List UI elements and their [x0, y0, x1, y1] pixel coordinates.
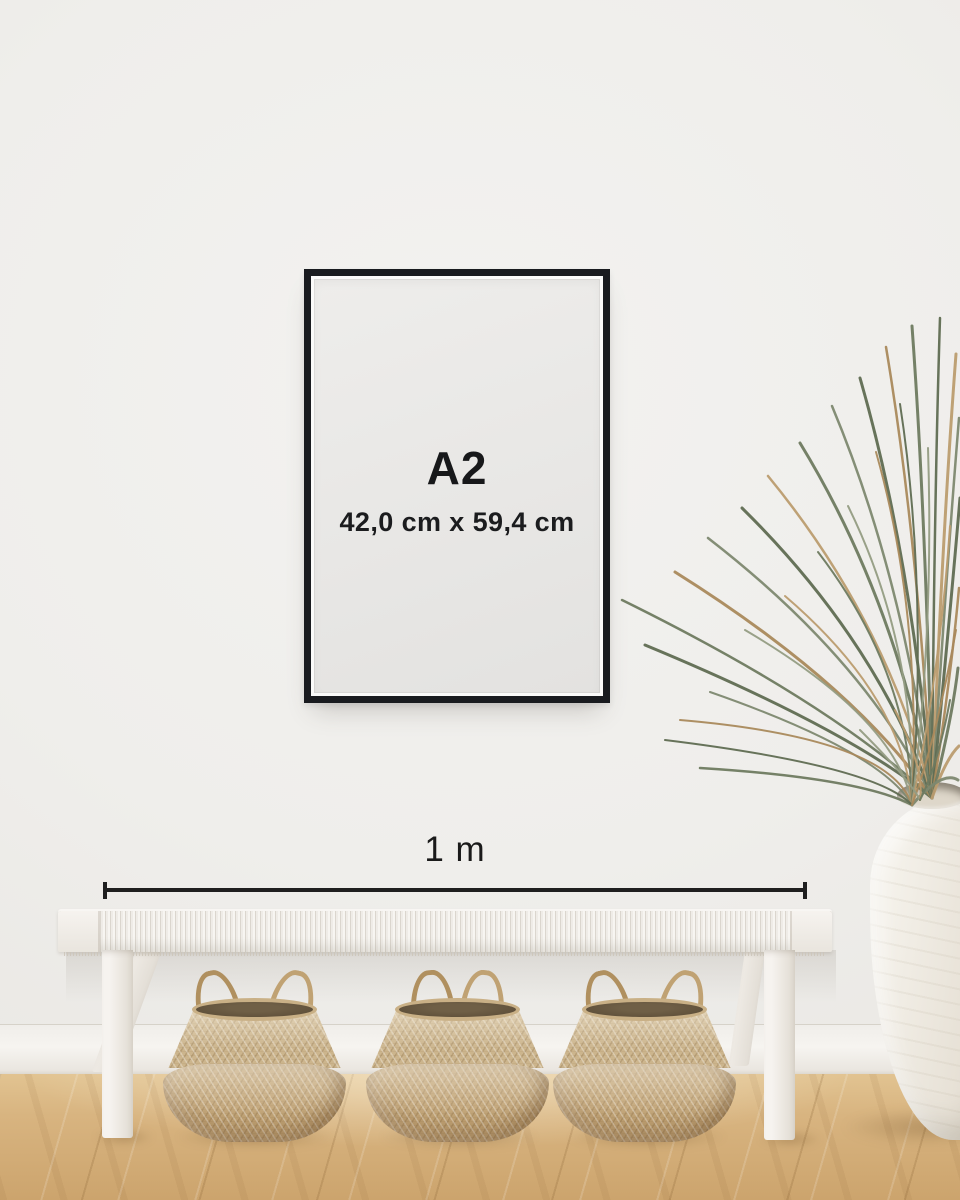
- palm-plant-illustration: [560, 300, 960, 820]
- basket-body-lower: [366, 1064, 549, 1142]
- basket-body-lower: [553, 1064, 736, 1142]
- palm-frond: [700, 768, 912, 805]
- basket-rim: [192, 998, 316, 1021]
- basket-body-lower: [163, 1064, 346, 1142]
- palm-frond: [708, 538, 932, 798]
- ruler-end-tick-left: [103, 882, 107, 899]
- bench-frame-end-right: [790, 911, 832, 952]
- palm-frond: [622, 600, 932, 798]
- measurement-ruler: 1 m: [103, 832, 807, 902]
- basket-center: [366, 958, 549, 1144]
- poster-dimensions-label: 42,0 cm x 59,4 cm: [340, 509, 575, 536]
- basket-rim: [395, 998, 519, 1021]
- basket-rim: [582, 998, 706, 1021]
- basket-left: [163, 958, 346, 1144]
- ruler-end-tick-right: [803, 882, 807, 899]
- bench-frame-end-left: [58, 911, 100, 952]
- measurement-label: 1 m: [103, 832, 807, 867]
- ruler-line: [103, 888, 807, 892]
- palm-frond: [932, 498, 960, 798]
- basket-right: [553, 958, 736, 1144]
- bench-leg-front-right: [764, 950, 795, 1140]
- size-guide-room-scene: A2 42,0 cm x 59,4 cm 1 m: [0, 0, 960, 1200]
- bench-seat: [58, 909, 832, 952]
- palm-frond: [742, 508, 932, 798]
- bench-leg-front-left: [102, 950, 133, 1138]
- poster-size-label: A2: [427, 445, 488, 491]
